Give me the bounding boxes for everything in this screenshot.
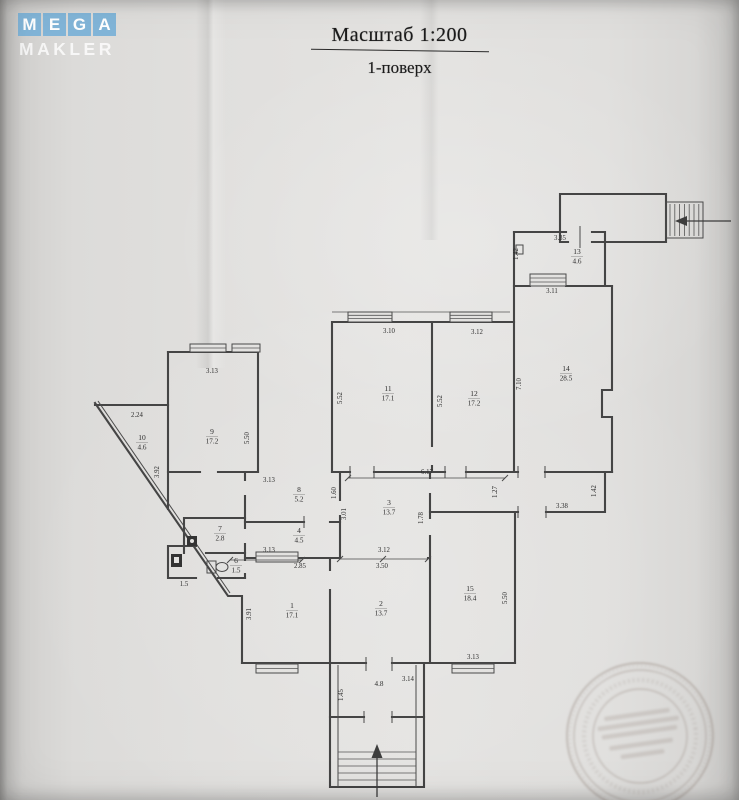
room-number: 2: [379, 599, 383, 608]
dimension-label: 1.42: [513, 247, 520, 259]
room-number: 12: [470, 389, 478, 398]
room-number: 14: [562, 364, 570, 373]
dimension-label: 1.78: [418, 511, 425, 523]
fixtures: [171, 245, 523, 573]
room-number: 9: [210, 427, 214, 436]
room-number: 8: [297, 485, 301, 494]
room-number: 10: [138, 433, 146, 442]
dimension-label: 5.50: [502, 591, 509, 603]
room-area: 2.8: [216, 535, 225, 543]
dimension-label: 3.10: [383, 328, 395, 335]
room-number: 6: [234, 556, 238, 565]
dimension-label: 3.13: [206, 368, 218, 375]
dimension-label: 3.12: [378, 547, 390, 554]
dimension-label: 3.12: [471, 329, 483, 336]
room-area: 4.6: [138, 444, 147, 452]
room-number: 13: [573, 247, 581, 256]
room-area: 17.2: [468, 400, 481, 408]
dimension-label: 1.60: [331, 486, 338, 498]
dimension-label: 5.52: [337, 391, 344, 403]
dimension-label: 1.5: [180, 581, 189, 588]
door-ticks: [304, 226, 580, 723]
dimension-label: 2.24: [131, 412, 143, 419]
floor-plan-drawing: 134.61428.51117.11217.2917.2104.685.2313…: [0, 0, 739, 800]
dimension-label: 3.91: [246, 608, 253, 620]
room-number: 4: [297, 526, 301, 535]
room-area: 17.1: [286, 612, 299, 620]
dimension-label: 2.85: [294, 563, 306, 570]
dimension-label: 3.38: [556, 503, 568, 510]
dimension-label: 5.50: [244, 431, 251, 443]
dimension-label: 6.17: [421, 469, 433, 476]
dimension-label: 5.52: [437, 394, 444, 406]
dimension-label: 7.10: [516, 377, 523, 389]
room-number: 3: [387, 498, 391, 507]
room-area: 13.7: [383, 509, 396, 517]
room-area: 17.2: [206, 438, 219, 446]
room-number: 1: [290, 601, 294, 610]
dimension-label: 3.13: [263, 477, 275, 484]
walls: [95, 194, 666, 787]
dimension-label: 3.35: [554, 235, 566, 242]
dimension-label: 3.11: [546, 288, 558, 295]
dimension-label: 3.50: [376, 563, 388, 570]
room-area: 4.8: [375, 680, 384, 688]
room-area: 5.2: [295, 496, 304, 504]
room-number: 7: [218, 524, 222, 533]
scanned-page: MEGA MAKLER Масштаб 1:200 1-поверх: [0, 0, 739, 800]
room-area: 4.6: [573, 258, 582, 266]
dimension-label: 1.42: [591, 484, 598, 496]
room-area: 18.4: [464, 595, 477, 603]
dimension-label: 3.13: [263, 547, 275, 554]
room-number: 15: [466, 584, 474, 593]
dimension-label: 3.92: [154, 465, 161, 477]
dimension-label: 1.45: [338, 688, 345, 700]
dimension-labels: 3.351.423.113.103.123.135.525.527.102.24…: [131, 235, 598, 701]
room-area: 13.7: [375, 610, 388, 618]
room-number: 11: [384, 384, 391, 393]
room-area: 17.1: [382, 395, 395, 403]
dimension-label: 3.01: [341, 508, 348, 520]
room-area: 28.5: [560, 375, 573, 383]
dimension-label: 1.27: [492, 485, 499, 497]
room-area: 4.5: [295, 537, 304, 545]
dimension-label: 3.14: [402, 676, 414, 683]
dimension-label: 3.13: [467, 654, 479, 661]
room-area: 1.5: [232, 567, 241, 575]
round-stamp: [558, 654, 723, 800]
